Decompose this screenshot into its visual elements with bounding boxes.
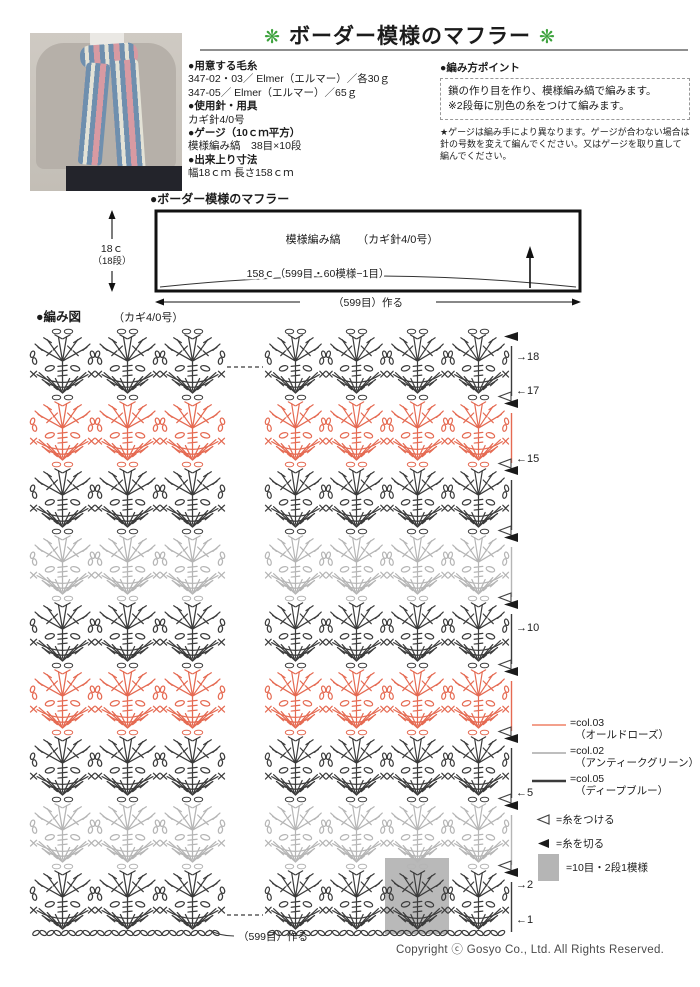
shell-motif bbox=[160, 804, 226, 862]
foundation-chain bbox=[32, 929, 40, 936]
foundation-chain bbox=[140, 929, 148, 936]
foundation-chain bbox=[368, 929, 376, 936]
shell-motif bbox=[387, 402, 449, 460]
attach-yarn-icon bbox=[536, 814, 550, 825]
chart-band bbox=[30, 737, 512, 802]
shell-motif bbox=[30, 603, 96, 661]
start-arrow bbox=[526, 246, 534, 288]
cut-yarn-label: =糸を切る bbox=[556, 836, 604, 851]
foundation-chain bbox=[360, 929, 368, 936]
row-number: →10 bbox=[516, 622, 539, 634]
attach-yarn-marker bbox=[499, 861, 511, 870]
photo-pants bbox=[66, 166, 182, 191]
shell-motif bbox=[95, 804, 161, 862]
foundation-chain bbox=[176, 929, 184, 936]
chart-band bbox=[30, 603, 512, 668]
shell-motif bbox=[95, 469, 161, 527]
points-block: ●編み方ポイント 鎖の作り目を作り、模様編み縞で編みます。 ※2段毎に別色の糸を… bbox=[440, 60, 690, 162]
yarn-line: 347-05／ Elmer（エルマー）／65ｇ bbox=[188, 87, 440, 100]
shell-motif bbox=[30, 804, 96, 862]
page-title-text: ボーダー模様のマフラー bbox=[289, 25, 531, 48]
foundation-chain bbox=[447, 929, 455, 936]
foundation-chain bbox=[324, 929, 332, 936]
foundation-chain bbox=[39, 929, 47, 936]
shell-motif bbox=[387, 737, 449, 795]
foundation-chain bbox=[104, 929, 112, 936]
flower-icon: ❋ bbox=[531, 27, 564, 48]
gauge-note: ★ゲージは編み手により異なります。ゲージが合わない場合は針の号数を変えて編んでく… bbox=[440, 126, 690, 162]
foundation-chain bbox=[490, 929, 498, 936]
foundation-chain bbox=[205, 929, 213, 936]
shell-motif bbox=[448, 469, 510, 527]
shell-motif bbox=[30, 402, 96, 460]
shell-motif bbox=[326, 804, 388, 862]
shell-motif bbox=[265, 804, 327, 862]
shell-motif bbox=[30, 871, 96, 929]
shell-motif bbox=[160, 670, 226, 728]
chart-title: ●編み図 bbox=[36, 310, 81, 324]
foundation-chain bbox=[53, 929, 61, 936]
shell-motif bbox=[160, 536, 226, 594]
color-code: =col.05 bbox=[570, 773, 668, 785]
foundation-chain bbox=[190, 929, 198, 936]
attach-yarn-marker bbox=[499, 794, 511, 803]
chart-band bbox=[30, 536, 512, 601]
foundation-chain bbox=[75, 929, 83, 936]
legend-color-entry: =col.02（アンティークグリーン） bbox=[532, 745, 697, 769]
shell-motif bbox=[30, 335, 96, 393]
chart-band bbox=[30, 329, 512, 400]
color-name-jp: （ディープブルー） bbox=[570, 785, 668, 797]
row-number: ←15 bbox=[516, 453, 539, 465]
foundation-chain bbox=[476, 929, 484, 936]
pattern-page: ❋ボーダー模様のマフラー❋ ●用意する毛糸 347-02・03／ Elmer（エ… bbox=[0, 0, 700, 987]
foundation-chain bbox=[133, 929, 141, 936]
shell-motif bbox=[448, 737, 510, 795]
foundation-chain bbox=[161, 929, 169, 936]
row-number: ←5 bbox=[516, 787, 533, 799]
foundation-chain bbox=[375, 929, 383, 936]
yarn-header: ●用意する毛糸 bbox=[188, 60, 440, 73]
row-number: ←1 bbox=[516, 914, 533, 926]
shell-motif bbox=[448, 402, 510, 460]
foundation-chain bbox=[497, 929, 505, 936]
size-line: 幅18ｃｍ 長さ158ｃｍ bbox=[188, 167, 440, 180]
shell-motif bbox=[265, 335, 327, 393]
yarn-color-line bbox=[532, 749, 566, 757]
height-sub-label: （18段） bbox=[92, 255, 131, 267]
shell-motif bbox=[95, 536, 161, 594]
shell-motif bbox=[265, 670, 327, 728]
foundation-chain bbox=[118, 929, 126, 936]
width-label: （599目）作る bbox=[333, 297, 403, 309]
foundation-chain bbox=[154, 929, 162, 936]
shell-motif bbox=[326, 670, 388, 728]
shell-motif bbox=[387, 670, 449, 728]
shell-motif bbox=[265, 469, 327, 527]
shell-motif bbox=[326, 871, 388, 929]
foundation-chain bbox=[346, 929, 354, 936]
shell-motif bbox=[448, 804, 510, 862]
shell-motif bbox=[265, 737, 327, 795]
shell-motif bbox=[448, 871, 510, 929]
pattern-unit-label: =10目・2段1模様 bbox=[566, 860, 648, 875]
page-title: ❋ボーダー模様のマフラー❋ bbox=[120, 20, 700, 50]
shell-motif bbox=[448, 335, 510, 393]
foundation-chain bbox=[97, 929, 105, 936]
color-code: =col.02 bbox=[570, 745, 697, 757]
color-code: =col.03 bbox=[570, 717, 669, 729]
shell-motif bbox=[160, 603, 226, 661]
height-label: 18ｃ bbox=[101, 243, 123, 255]
gauge-header: ●ゲージ（10ｃｍ平方） bbox=[188, 127, 440, 140]
shell-motif bbox=[160, 871, 226, 929]
foundation-chain bbox=[332, 929, 340, 936]
legend-pattern-unit: =10目・2段1模様 bbox=[538, 854, 648, 881]
needle-line: カギ針4/0号 bbox=[188, 114, 440, 127]
cut-yarn-icon bbox=[536, 838, 550, 849]
shell-motif bbox=[387, 469, 449, 527]
attach-yarn-marker bbox=[499, 660, 511, 669]
shell-motif bbox=[265, 603, 327, 661]
attach-yarn-marker bbox=[499, 593, 511, 602]
foundation-chain bbox=[483, 929, 491, 936]
shell-motif bbox=[387, 603, 449, 661]
foundation-chain bbox=[169, 929, 177, 936]
foundation-chain bbox=[317, 929, 325, 936]
shell-motif bbox=[30, 469, 96, 527]
title-underline bbox=[200, 49, 688, 51]
chart-band bbox=[30, 469, 512, 534]
points-line: 鎖の作り目を作り、模様編み縞で編みます。 bbox=[448, 84, 682, 99]
shell-motif bbox=[160, 469, 226, 527]
shell-motif bbox=[326, 603, 388, 661]
row-number: →18 bbox=[516, 351, 539, 363]
shell-motif bbox=[265, 871, 327, 929]
shell-motif bbox=[160, 402, 226, 460]
legend-color-entry: =col.05（ディープブルー） bbox=[532, 773, 697, 797]
shell-motif bbox=[326, 402, 388, 460]
shell-motif bbox=[160, 335, 226, 393]
foundation-chain bbox=[111, 929, 119, 936]
shell-motif bbox=[387, 804, 449, 862]
row-number: →2 bbox=[516, 879, 533, 891]
shell-motif bbox=[160, 737, 226, 795]
schematic-stitch-label: 模様編み縞 （カギ針4/0号） bbox=[286, 232, 439, 246]
shell-motif bbox=[326, 469, 388, 527]
chart-band bbox=[30, 670, 512, 735]
foundation-chain bbox=[353, 929, 361, 936]
foundation-count-label: （599目）作る bbox=[238, 931, 308, 943]
cut-yarn-marker bbox=[504, 332, 518, 341]
shell-motif bbox=[448, 536, 510, 594]
color-name-jp: （オールドローズ） bbox=[570, 729, 669, 741]
shell-motif bbox=[95, 402, 161, 460]
shell-motif bbox=[326, 536, 388, 594]
points-line: ※2段毎に別色の糸をつけて編みます。 bbox=[448, 99, 682, 114]
shell-motif bbox=[265, 402, 327, 460]
foundation-chain bbox=[197, 929, 205, 936]
foundation-chain bbox=[46, 929, 54, 936]
foundation-chain bbox=[310, 929, 318, 936]
foundation-chain bbox=[61, 929, 69, 936]
shell-motif bbox=[448, 670, 510, 728]
color-name-jp: （アンティークグリーン） bbox=[570, 757, 697, 769]
shell-motif bbox=[30, 670, 96, 728]
gauge-line: 模様編み縞 38目×10段 bbox=[188, 140, 440, 153]
shell-motif bbox=[95, 603, 161, 661]
shell-motif bbox=[95, 737, 161, 795]
schematic-diagram: 模様編み縞 （カギ針4/0号） 158ｃ（599目・60模様−1目） 18ｃ （… bbox=[0, 205, 700, 320]
shell-motif bbox=[95, 871, 161, 929]
shell-motif bbox=[95, 670, 161, 728]
shell-motif bbox=[30, 536, 96, 594]
scarf-photo bbox=[30, 33, 182, 191]
chart-band bbox=[30, 402, 512, 467]
attach-yarn-marker bbox=[499, 459, 511, 468]
needle-header: ●使用針・用具 bbox=[188, 100, 440, 113]
yarn-line: 347-02・03／ Elmer（エルマー）／各30ｇ bbox=[188, 73, 440, 86]
attach-yarn-marker bbox=[499, 727, 511, 736]
shell-motif bbox=[265, 536, 327, 594]
shell-motif bbox=[326, 737, 388, 795]
foundation-chain bbox=[339, 929, 347, 936]
legend-cut-yarn: =糸を切る bbox=[536, 836, 604, 851]
foundation-chain bbox=[183, 929, 191, 936]
color-legend: =col.03（オールドローズ）=col.02（アンティークグリーン）=col.… bbox=[532, 717, 697, 801]
flower-icon: ❋ bbox=[256, 27, 289, 48]
yarn-color-line bbox=[532, 777, 566, 785]
foundation-chain bbox=[125, 929, 133, 936]
materials-block: ●用意する毛糸 347-02・03／ Elmer（エルマー）／各30ｇ 347-… bbox=[188, 60, 440, 181]
foundation-chain bbox=[461, 929, 469, 936]
attach-yarn-marker bbox=[499, 526, 511, 535]
size-header: ●出来上り寸法 bbox=[188, 154, 440, 167]
foundation-chain bbox=[147, 929, 155, 936]
legend-color-entry: =col.03（オールドローズ） bbox=[532, 717, 697, 741]
foundation-chain bbox=[82, 929, 90, 936]
shell-motif bbox=[95, 335, 161, 393]
foundation-chain bbox=[468, 929, 476, 936]
legend-attach-yarn: =糸をつける bbox=[536, 812, 615, 827]
attach-yarn-marker bbox=[499, 392, 511, 401]
points-box: 鎖の作り目を作り、模様編み縞で編みます。 ※2段毎に別色の糸をつけて編みます。 bbox=[440, 78, 690, 120]
shell-motif bbox=[387, 536, 449, 594]
chart-header: ●編み図（カギ4/0号） bbox=[36, 306, 183, 325]
shell-motif bbox=[448, 603, 510, 661]
row-number: ←17 bbox=[516, 385, 539, 397]
points-header: ●編み方ポイント bbox=[440, 60, 690, 75]
foundation-chain bbox=[89, 929, 97, 936]
pattern-unit-swatch bbox=[538, 854, 559, 881]
shell-motif bbox=[387, 335, 449, 393]
foundation-chain bbox=[68, 929, 76, 936]
attach-yarn-label: =糸をつける bbox=[556, 812, 615, 827]
chart-hook-label: （カギ4/0号） bbox=[113, 312, 183, 324]
length-label: 158ｃ（599目・60模様−1目） bbox=[247, 267, 390, 280]
shell-motif bbox=[326, 335, 388, 393]
yarn-color-line bbox=[532, 721, 566, 729]
copyright-text: Copyright ⓒ Gosyo Co., Ltd. All Rights R… bbox=[396, 941, 664, 957]
shell-motif bbox=[30, 737, 96, 795]
foundation-chain bbox=[454, 929, 462, 936]
